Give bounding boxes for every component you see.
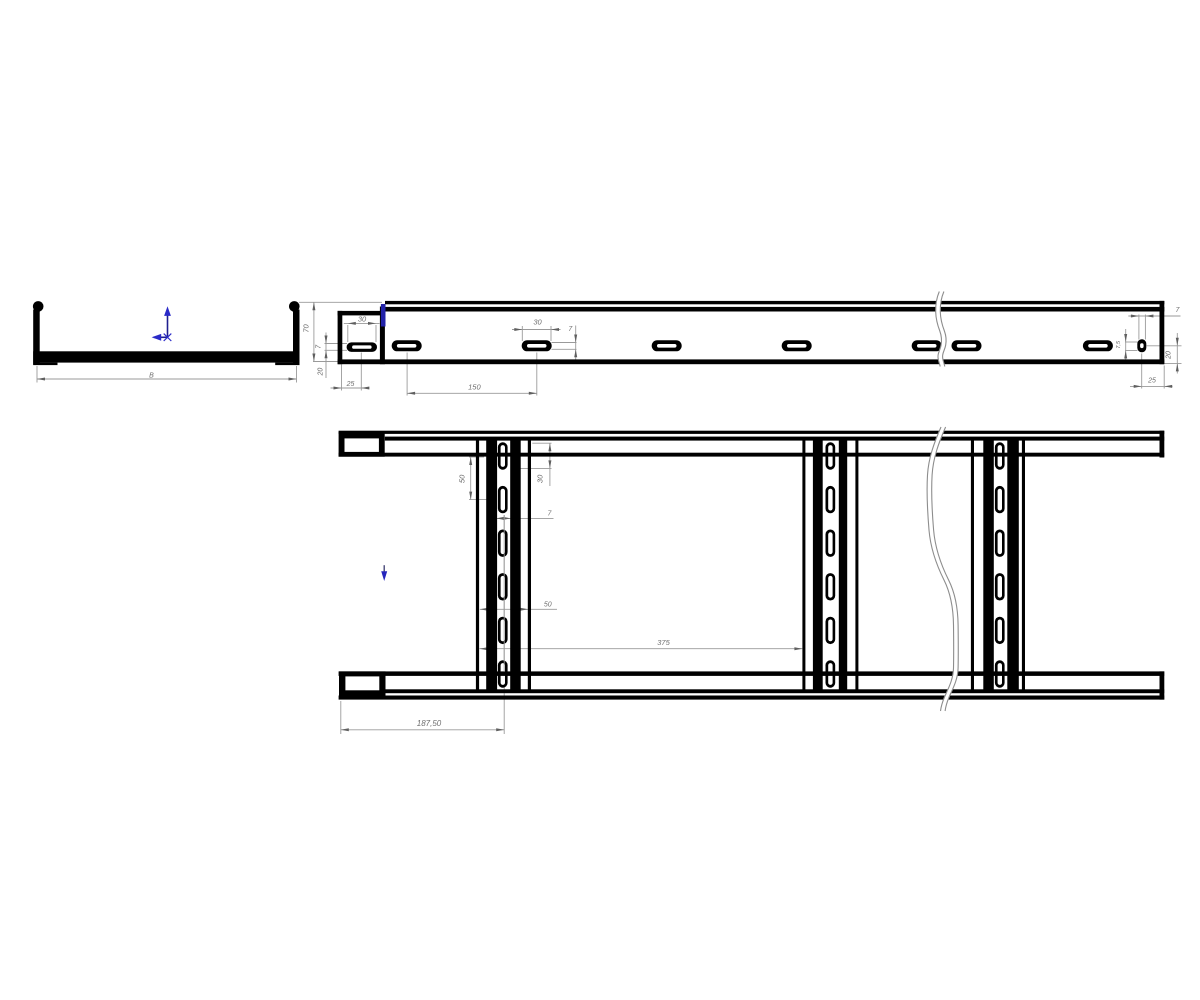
svg-text:50: 50 [457,474,466,483]
svg-text:375: 375 [657,638,670,647]
svg-text:7,5: 7,5 [1116,340,1122,349]
svg-text:30: 30 [536,474,545,483]
svg-text:70: 70 [301,324,310,333]
svg-text:20: 20 [1166,351,1173,360]
svg-text:30: 30 [533,318,542,327]
svg-text:20: 20 [318,368,325,377]
svg-text:7: 7 [315,344,322,349]
svg-text:50: 50 [544,601,552,608]
svg-text:7: 7 [548,511,553,518]
svg-text:150: 150 [468,382,481,391]
svg-text:187,50: 187,50 [417,719,442,728]
svg-text:25: 25 [1147,377,1156,384]
svg-text:7: 7 [568,326,573,333]
svg-text:B: B [149,372,154,379]
svg-text:7: 7 [1176,307,1181,314]
svg-text:30: 30 [358,314,367,323]
svg-text:25: 25 [346,381,355,388]
